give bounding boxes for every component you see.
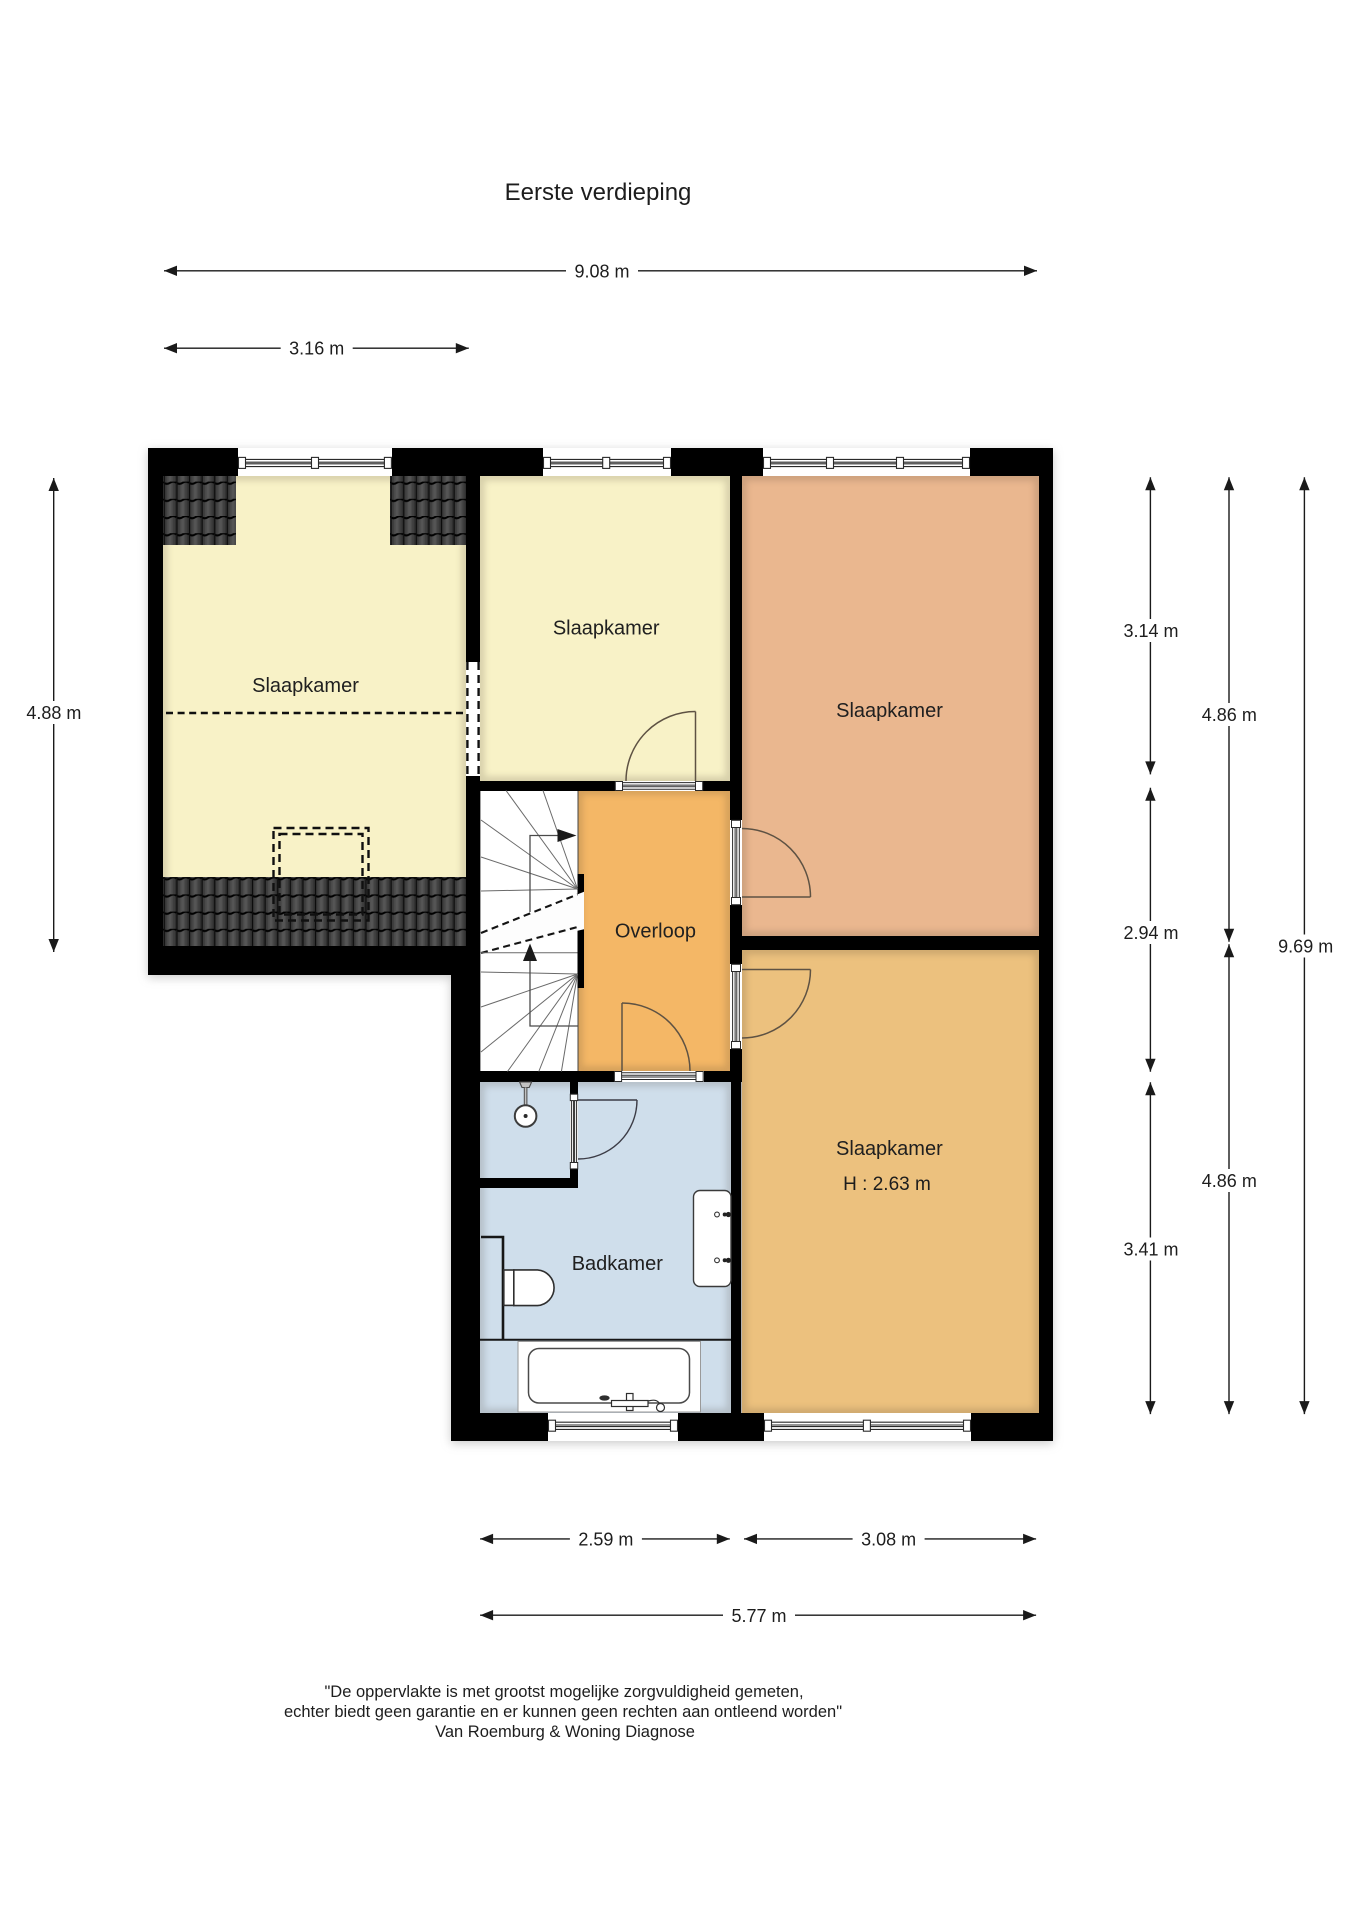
svg-text:4.86 m: 4.86 m bbox=[1202, 1171, 1257, 1191]
svg-text:Overloop: Overloop bbox=[615, 921, 696, 943]
svg-text:2.94 m: 2.94 m bbox=[1123, 923, 1178, 943]
svg-text:9.08 m: 9.08 m bbox=[574, 261, 629, 281]
svg-text:4.88 m: 4.88 m bbox=[26, 703, 81, 723]
svg-text:Slaapkamer: Slaapkamer bbox=[252, 675, 359, 697]
svg-text:4.86 m: 4.86 m bbox=[1202, 705, 1257, 725]
svg-text:3.14 m: 3.14 m bbox=[1123, 621, 1178, 641]
svg-text:echter biedt geen garantie en: echter biedt geen garantie en er kunnen … bbox=[284, 1703, 842, 1721]
svg-text:9.69 m: 9.69 m bbox=[1278, 937, 1333, 957]
svg-text:"De oppervlakte is met grootst: "De oppervlakte is met grootst mogelijke… bbox=[324, 1683, 803, 1701]
svg-text:Slaapkamer: Slaapkamer bbox=[836, 1138, 943, 1160]
svg-text:Van Roemburg & Woning Diagnose: Van Roemburg & Woning Diagnose bbox=[435, 1723, 695, 1741]
svg-text:2.59 m: 2.59 m bbox=[578, 1529, 633, 1549]
svg-text:5.77 m: 5.77 m bbox=[731, 1606, 786, 1626]
svg-text:3.08 m: 3.08 m bbox=[861, 1529, 916, 1549]
svg-text:H : 2.63 m: H : 2.63 m bbox=[843, 1174, 931, 1195]
svg-text:Eerste verdieping: Eerste verdieping bbox=[505, 179, 692, 206]
svg-text:Slaapkamer: Slaapkamer bbox=[836, 700, 943, 722]
svg-text:Badkamer: Badkamer bbox=[572, 1253, 663, 1275]
svg-text:3.16 m: 3.16 m bbox=[289, 339, 344, 359]
svg-text:3.41 m: 3.41 m bbox=[1123, 1240, 1178, 1260]
svg-text:Slaapkamer: Slaapkamer bbox=[553, 618, 660, 640]
